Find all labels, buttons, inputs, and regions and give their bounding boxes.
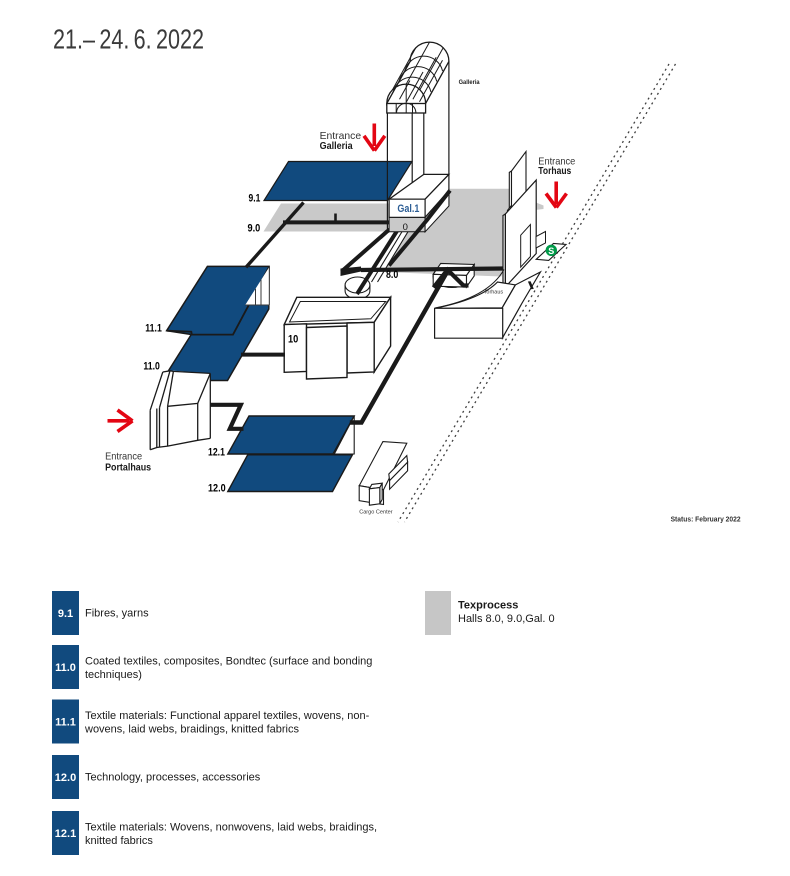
svg-text:wovens, laid webs, braidings,: wovens, laid webs, braidings, knitted fa… [84, 724, 299, 736]
svg-text:Torhaus: Torhaus [484, 290, 503, 296]
svg-text:10: 10 [288, 334, 298, 346]
svg-text:12.0: 12.0 [208, 483, 226, 495]
svg-text:11.0: 11.0 [55, 662, 76, 674]
svg-text:21.– 24. 6. 2022: 21.– 24. 6. 2022 [53, 24, 204, 55]
svg-text:Cargo Center: Cargo Center [359, 510, 392, 516]
svg-text:Technology, processes, accesso: Technology, processes, accessories [85, 772, 261, 784]
svg-text:S: S [548, 246, 554, 256]
svg-text:9.1: 9.1 [58, 608, 73, 620]
svg-text:12.1: 12.1 [208, 447, 225, 459]
svg-text:techniques): techniques) [85, 669, 142, 681]
svg-text:Texprocess: Texprocess [458, 600, 518, 612]
svg-text:12.1: 12.1 [55, 828, 76, 840]
svg-text:11.1: 11.1 [145, 323, 162, 335]
svg-text:0: 0 [403, 222, 408, 233]
svg-text:knitted fabrics: knitted fabrics [85, 835, 153, 847]
svg-text:11.1: 11.1 [55, 717, 76, 729]
svg-text:Galleria: Galleria [320, 140, 353, 152]
svg-text:Coated textiles, composites, B: Coated textiles, composites, Bondtec (su… [85, 656, 372, 668]
svg-text:8.0: 8.0 [386, 269, 398, 281]
svg-text:Galleria: Galleria [459, 79, 480, 86]
svg-text:9.1: 9.1 [249, 193, 261, 205]
svg-text:11.0: 11.0 [143, 361, 160, 373]
svg-text:Gal.1: Gal.1 [397, 203, 419, 215]
svg-text:Torhaus: Torhaus [538, 165, 571, 177]
svg-text:Textile materials: Functional: Textile materials: Functional apparel te… [85, 710, 370, 722]
svg-text:Halls 8.0, 9.0,Gal. 0: Halls 8.0, 9.0,Gal. 0 [458, 613, 555, 625]
svg-text:12.0: 12.0 [55, 772, 76, 784]
svg-text:Fibres, yarns: Fibres, yarns [85, 608, 149, 620]
svg-text:Textile materials: Wovens, non: Textile materials: Wovens, nonwovens, la… [85, 822, 377, 834]
svg-text:9.0: 9.0 [248, 223, 261, 235]
svg-text:Portalhaus: Portalhaus [105, 461, 151, 473]
svg-text:Status: February 2022: Status: February 2022 [671, 514, 741, 523]
